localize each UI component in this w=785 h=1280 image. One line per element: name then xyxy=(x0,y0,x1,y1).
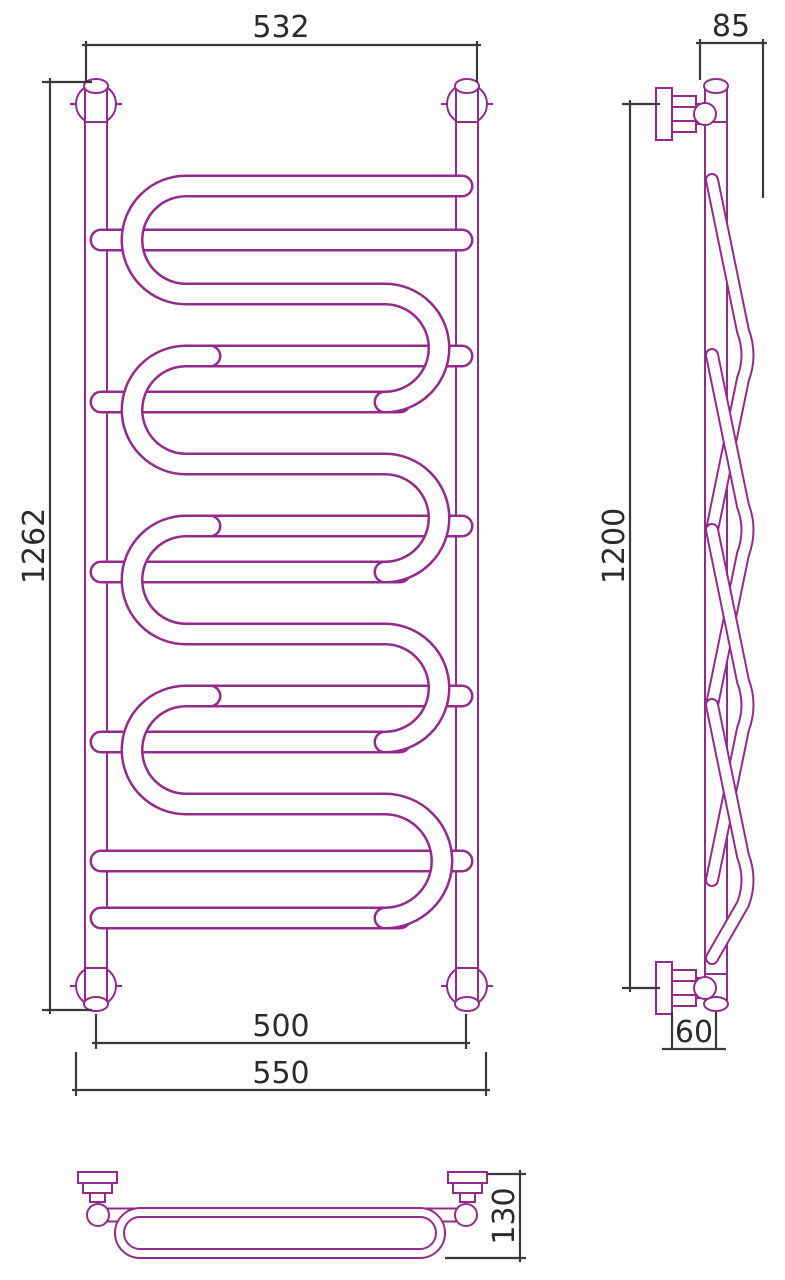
plan-riser-right xyxy=(455,1204,477,1226)
dim-label-85: 85 xyxy=(712,9,750,44)
serpentine-coil xyxy=(132,186,462,918)
dim-side-wall-offset: 60 xyxy=(662,1012,726,1050)
front-view: 532 1262 500 550 xyxy=(17,10,493,1096)
dim-label-1262: 1262 xyxy=(17,508,52,584)
dim-label-60: 60 xyxy=(675,1015,713,1050)
dim-front-height: 1262 xyxy=(17,78,92,1014)
plan-riser-left xyxy=(87,1204,109,1226)
dim-side-height: 1200 xyxy=(597,100,660,992)
dim-label-130: 130 xyxy=(487,1187,522,1244)
plan-bracket-right xyxy=(448,1172,487,1202)
dim-label-550: 550 xyxy=(252,1056,309,1091)
side-view: 85 1200 60 xyxy=(597,9,767,1050)
dim-front-width-outer: 550 xyxy=(72,1052,490,1096)
plan-bracket-left xyxy=(78,1172,117,1202)
dim-label-1200: 1200 xyxy=(597,508,632,584)
dim-label-532: 532 xyxy=(252,10,309,45)
technical-drawing: 532 1262 500 550 xyxy=(0,0,785,1280)
drawing-sheet: 532 1262 500 550 xyxy=(0,0,785,1280)
plan-view: 130 xyxy=(78,1170,526,1262)
plan-coil-loop xyxy=(115,1208,445,1258)
dim-front-width-inner: 500 xyxy=(92,1009,470,1049)
dim-label-500: 500 xyxy=(252,1009,309,1044)
dim-front-width-top: 532 xyxy=(82,10,481,82)
